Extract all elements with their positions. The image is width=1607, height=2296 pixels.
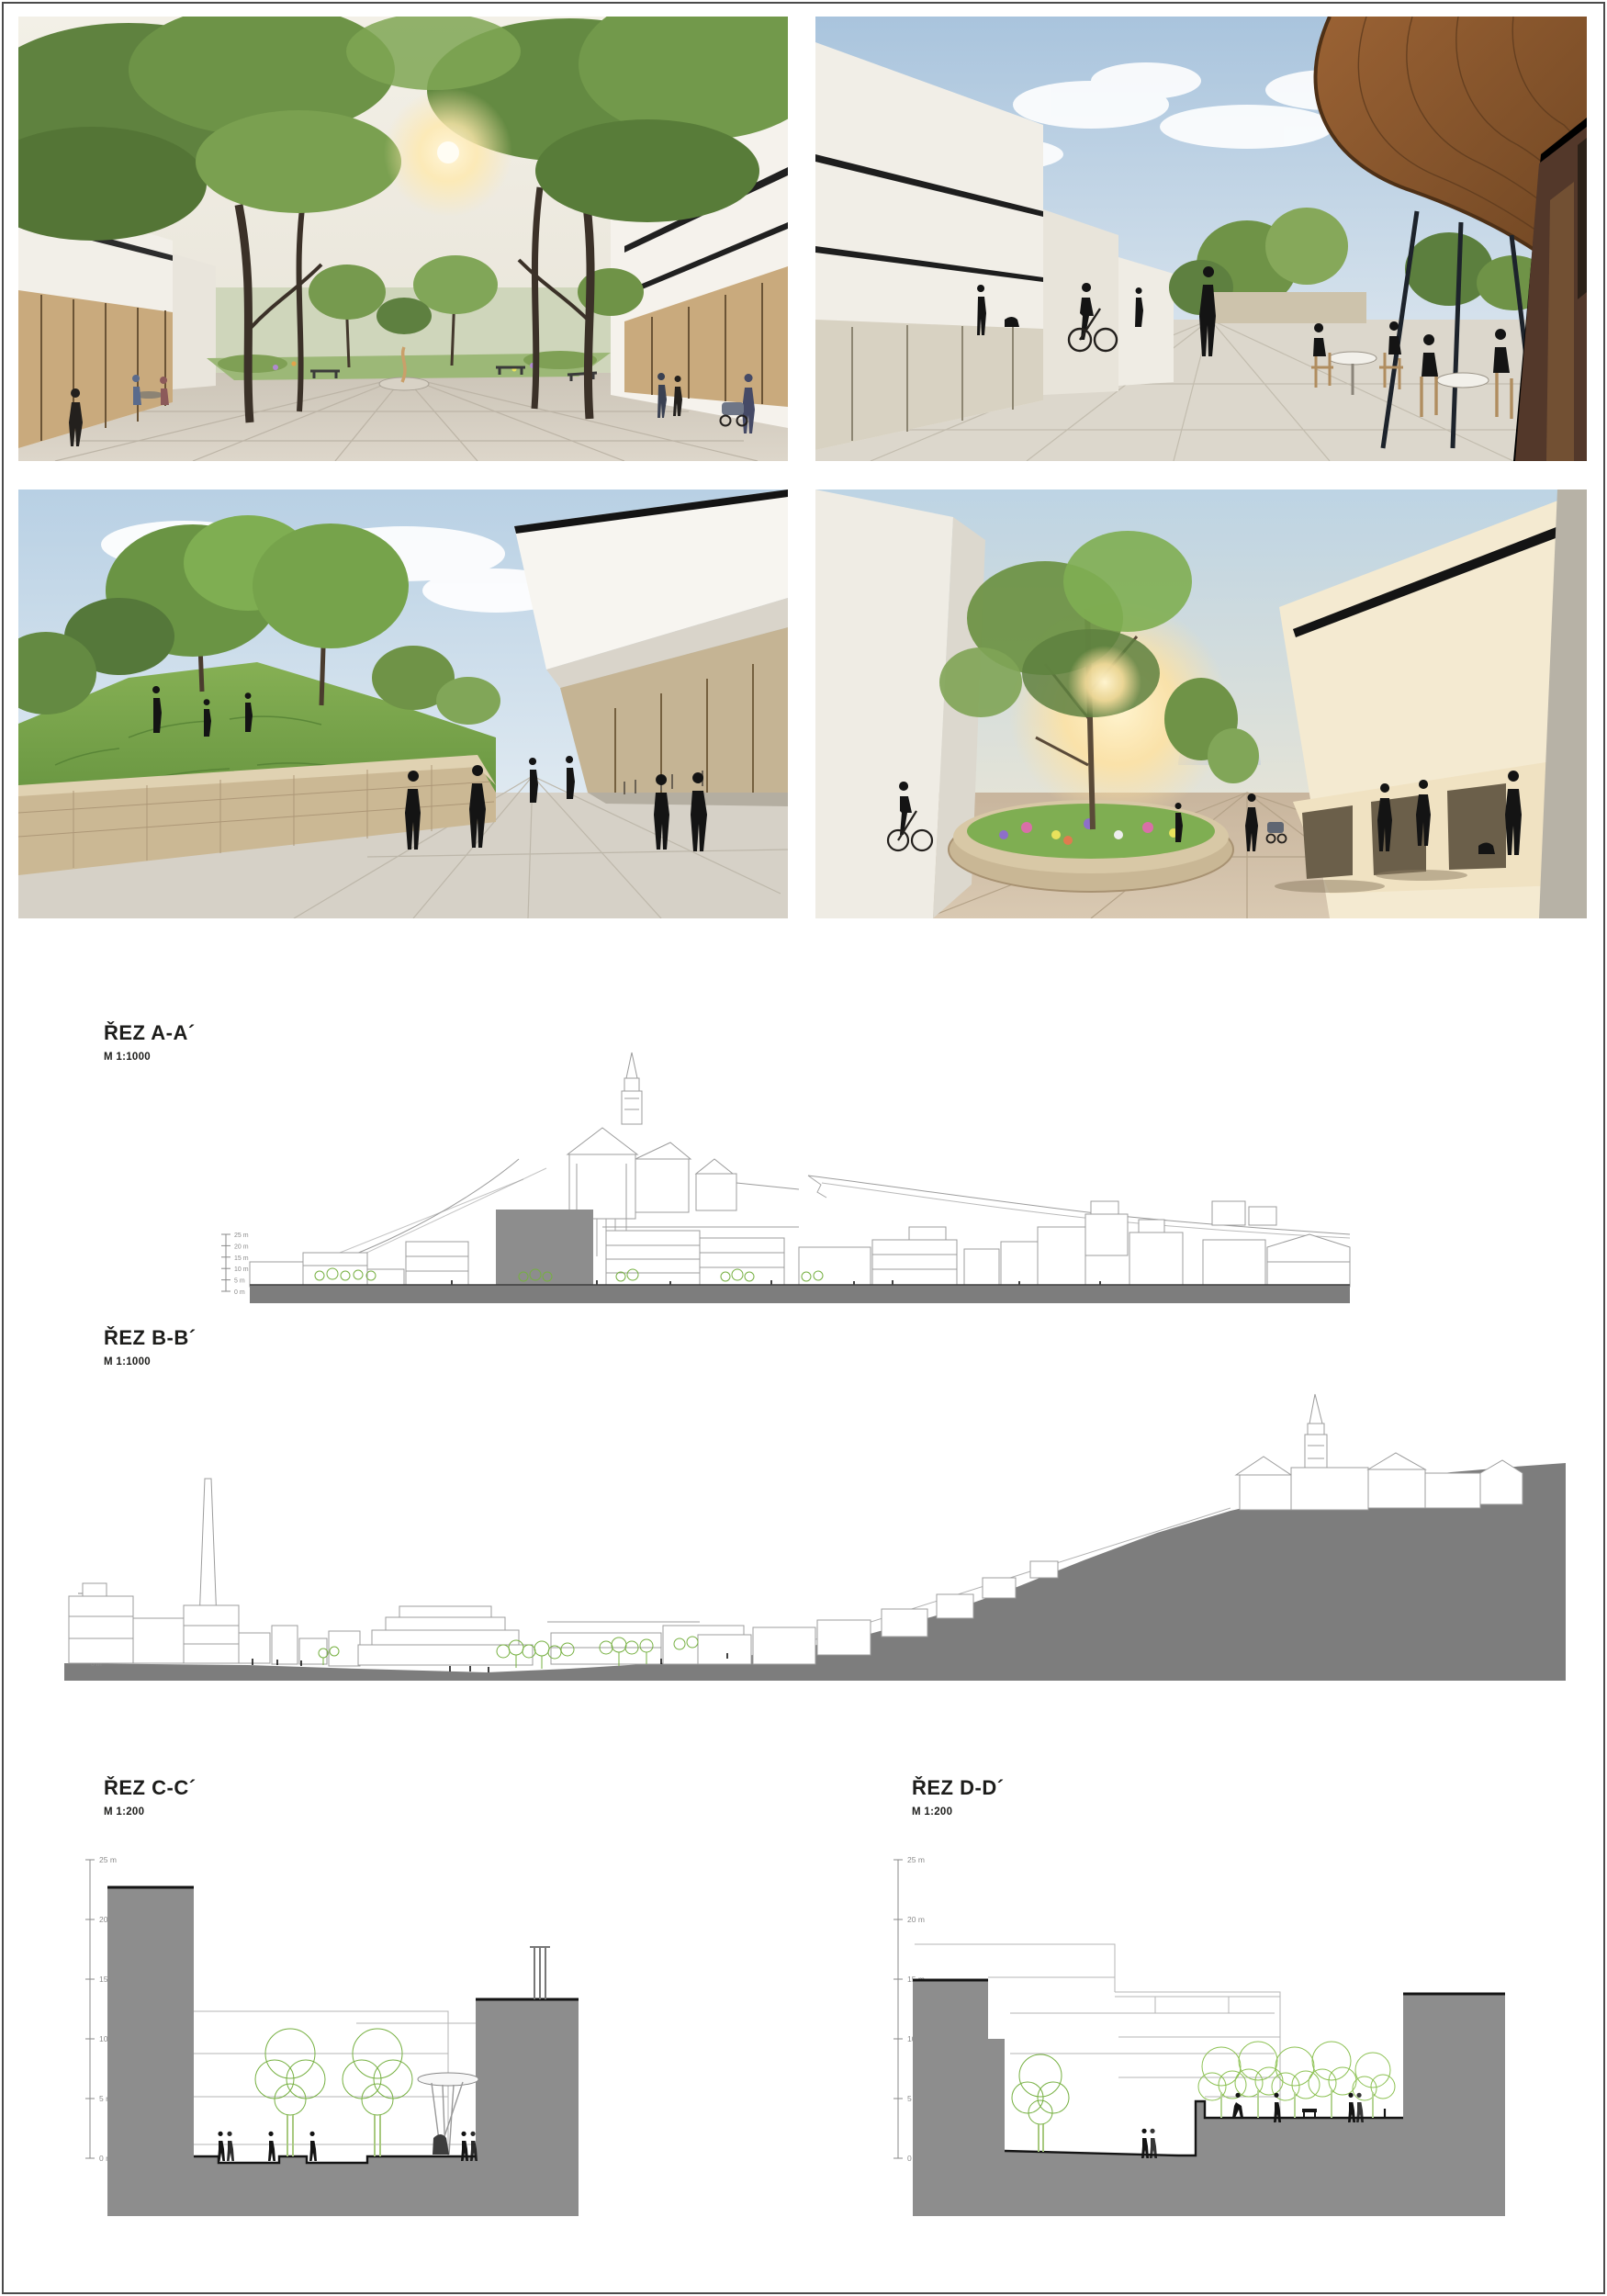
section-d-drawing: 25 m 20 m 15 m 10 m 5 m 0 m xyxy=(880,1835,1523,2221)
section-b-scale: M 1:1000 xyxy=(104,1356,197,1367)
left-buildings xyxy=(69,1479,360,1666)
scale-bar-a: 25 m 20 m 15 m 10 m 5 m 0 m xyxy=(221,1232,249,1296)
sun xyxy=(437,141,459,163)
tick-label: 20 m xyxy=(234,1244,249,1250)
section-b-drawing: 25 m 20 m 15 m 10 m 5 m 0 m xyxy=(55,1376,1570,1684)
presentation-board: ŘEZ A-A´ M 1:1000 25 m 20 m 15 m 10 m 5 … xyxy=(0,0,1607,2296)
tick-label: 5 m xyxy=(234,1278,245,1285)
hilltop-church xyxy=(1236,1394,1523,1510)
render-mound-promenade xyxy=(18,490,788,918)
section-b-label: ŘEZ B-B´ M 1:1000 xyxy=(104,1326,197,1367)
section-b-title: ŘEZ B-B´ xyxy=(104,1326,197,1350)
street-buildings xyxy=(250,1227,1350,1287)
render-park-square-image xyxy=(18,17,788,461)
render-planter-alley xyxy=(815,490,1587,918)
section-trees xyxy=(255,2029,412,2156)
tick-label: 25 m xyxy=(99,1855,117,1864)
section-massing xyxy=(107,1887,579,2216)
seated-figure xyxy=(433,2134,449,2155)
tick-label: 15 m xyxy=(234,1255,249,1262)
render-canopy-street-image xyxy=(815,17,1587,461)
tick-label: 10 m xyxy=(234,1266,249,1273)
section-c-drawing: 25 m 20 m 15 m 10 m 5 m 0 m xyxy=(81,1835,602,2221)
section-d-label: ŘEZ D-D´ M 1:200 xyxy=(912,1776,1005,1818)
tick-label: 0 m xyxy=(234,1289,245,1296)
stepped-building xyxy=(358,1606,533,1665)
section-a-title: ŘEZ A-A´ xyxy=(104,1021,196,1045)
render-canopy-street xyxy=(815,17,1587,461)
tick-label: 25 m xyxy=(907,1855,925,1864)
section-c-title: ŘEZ C-C´ xyxy=(104,1776,197,1800)
section-d-title: ŘEZ D-D´ xyxy=(912,1776,1005,1800)
section-a-scale: M 1:1000 xyxy=(104,1052,196,1063)
roof-poles xyxy=(530,1947,550,1999)
section-c-scale: M 1:200 xyxy=(104,1806,197,1818)
section-a-label: ŘEZ A-A´ M 1:1000 xyxy=(104,1021,196,1063)
section-c-label: ŘEZ C-C´ M 1:200 xyxy=(104,1776,197,1818)
tick-label: 25 m xyxy=(234,1232,249,1239)
tick-label: 20 m xyxy=(907,1915,925,1924)
render-park-square xyxy=(18,17,788,461)
render-planter-alley-image xyxy=(815,490,1587,918)
section-d-scale: M 1:200 xyxy=(912,1806,1005,1818)
solid-building xyxy=(496,1210,593,1287)
section-massing xyxy=(913,1980,1505,2216)
ground-bar xyxy=(250,1285,1350,1303)
render-mound-promenade-image xyxy=(18,490,788,918)
section-a-drawing: 25 m 20 m 15 m 10 m 5 m 0 m xyxy=(211,1021,1423,1308)
terrace-trees xyxy=(1198,2042,1395,2118)
courtyard-tree xyxy=(1012,2054,1069,2152)
